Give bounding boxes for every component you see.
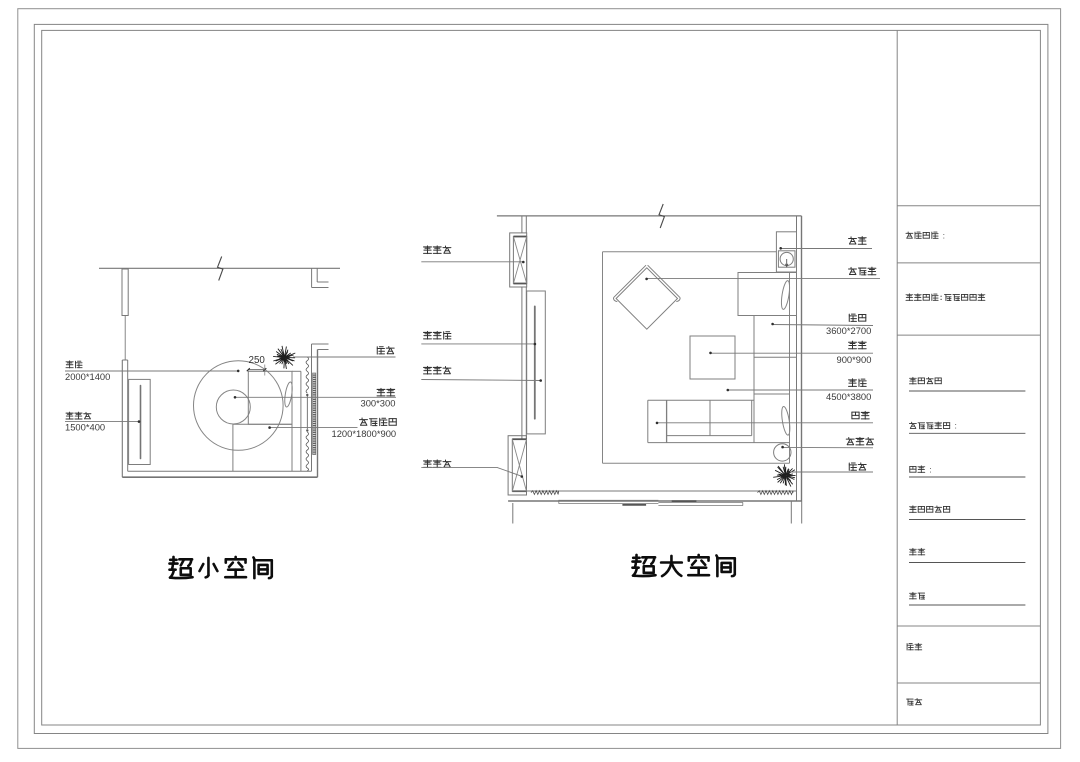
svg-text:900*900: 900*900 — [837, 354, 872, 365]
svg-text::: : — [955, 422, 957, 431]
svg-text::: : — [929, 465, 931, 474]
svg-text:250: 250 — [249, 355, 266, 366]
svg-text:3600*2700: 3600*2700 — [826, 325, 871, 336]
svg-text:1500*400: 1500*400 — [65, 422, 105, 433]
svg-text:4500*3800: 4500*3800 — [826, 391, 871, 402]
svg-text:2000*1400: 2000*1400 — [65, 371, 110, 382]
svg-text:300*300: 300*300 — [361, 398, 396, 409]
svg-text::: : — [943, 231, 945, 240]
svg-text:1200*1800*900: 1200*1800*900 — [332, 428, 397, 439]
